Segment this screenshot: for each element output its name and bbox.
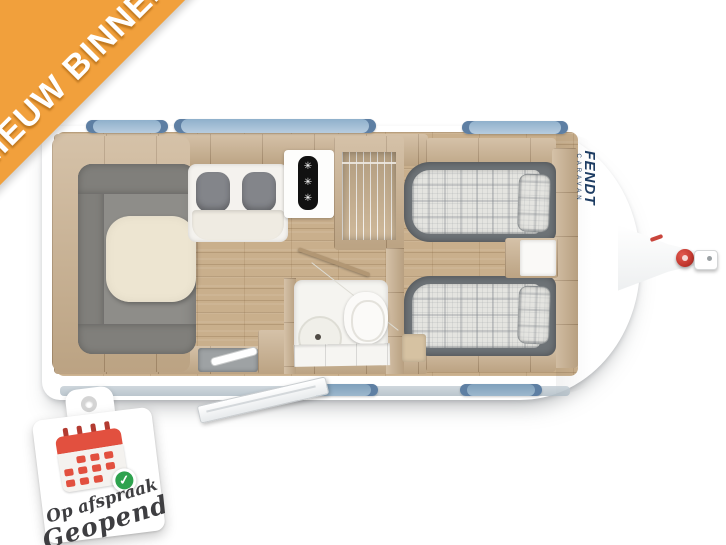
pillow-bottom	[517, 285, 551, 344]
bench-headrest-left	[196, 172, 230, 212]
bathroom-step	[294, 343, 390, 367]
window-top-front	[462, 121, 568, 134]
sofa-cushion-top	[78, 164, 196, 194]
wardrobe-hangers	[342, 152, 396, 240]
pillow-top	[517, 173, 551, 232]
burner-icon: ✳	[304, 162, 312, 172]
appointment-badge: ✓ Op afspraak Geopend	[24, 380, 172, 545]
calendar-dot	[93, 475, 103, 483]
calendar-dot	[78, 466, 88, 474]
calendar-dot	[104, 451, 114, 459]
hitch-coupling-dot	[707, 256, 712, 261]
hitch-coupling	[694, 250, 718, 270]
bench-headrest-right	[242, 172, 276, 212]
window-top-rear	[86, 120, 168, 133]
calendar-dot	[90, 453, 100, 461]
bench-seat-base	[192, 210, 284, 240]
burner-icon: ✳	[304, 178, 312, 188]
window-top-middle	[174, 119, 376, 133]
bedside-chest-top	[520, 240, 556, 276]
calendar-dot	[64, 468, 74, 476]
jockey-wheel-pin	[682, 255, 688, 261]
wardrobe-rail	[342, 162, 396, 164]
brand-logo: FENDT CARAVAN	[568, 146, 604, 210]
sofa-cushion-bottom	[78, 324, 196, 354]
dining-table	[106, 216, 196, 302]
caravan-listing-image: ✳ ✳ ✳ FENDT CARAVAN	[0, 0, 726, 545]
toilet-seat-ring	[351, 300, 385, 342]
calendar-dot	[66, 479, 76, 487]
bed-step	[402, 334, 426, 362]
calendar-dot	[80, 477, 90, 485]
brand-subtitle: CARAVAN	[575, 153, 583, 202]
cooktop: ✳ ✳ ✳	[298, 156, 318, 210]
calendar-dot	[76, 455, 86, 463]
shower-drain	[315, 334, 321, 340]
calendar-dot	[92, 464, 102, 472]
window-bottom-front	[460, 384, 542, 396]
calendar-icon: ✓	[55, 427, 129, 493]
calendar-dot	[105, 462, 115, 470]
brand-name: FENDT	[583, 151, 598, 206]
burner-icon: ✳	[304, 194, 312, 204]
